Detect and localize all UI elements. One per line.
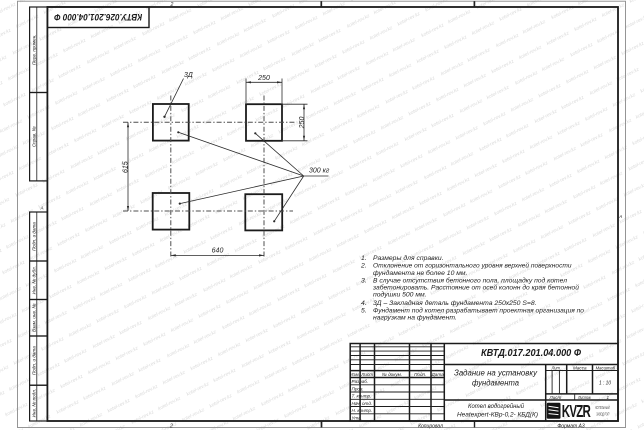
svg-text:250: 250 — [257, 75, 270, 82]
svg-text:КОТЕЛЬНЫЙ: КОТЕЛЬНЫЙ — [595, 405, 610, 410]
svg-text:Нач. отд.: Нач. отд. — [352, 401, 373, 406]
svg-text:нагрузкам на фундамент.: нагрузкам на фундамент. — [373, 314, 457, 322]
svg-text:Котел водогрейный: Котел водогрейный — [468, 402, 524, 410]
svg-text:фундамента: фундамента — [472, 378, 519, 388]
svg-text:Перв. примен.: Перв. примен. — [31, 34, 36, 65]
svg-text:Дата: Дата — [431, 372, 445, 377]
svg-text:2.: 2. — [360, 262, 367, 269]
svg-text:фундамента не более 10 мм.: фундамента не более 10 мм. — [373, 269, 468, 277]
svg-text:KVZR: KVZR — [562, 403, 591, 422]
svg-text:615: 615 — [123, 161, 130, 173]
svg-text:Н. контр.: Н. контр. — [352, 408, 373, 413]
svg-text:3Д – Закладная деталь фундамен: 3Д – Закладная деталь фундамента 250х250… — [373, 299, 537, 307]
svg-text:Heatexpert-КВр-0,2- КБД(К): Heatexpert-КВр-0,2- КБД(К) — [457, 411, 538, 418]
svg-text:3Д: 3Д — [184, 72, 193, 79]
svg-text:Лит.: Лит. — [551, 365, 561, 370]
svg-text:Копировал: Копировал — [418, 424, 443, 430]
svg-text:Размеры для справки.: Размеры для справки. — [373, 254, 444, 262]
svg-text:КВТУ.026.201.04.000 Ф: КВТУ.026.201.04.000 Ф — [54, 11, 142, 22]
svg-text:Подп. и дата: Подп. и дата — [31, 346, 36, 375]
svg-text:1 : 10: 1 : 10 — [599, 381, 611, 387]
svg-text:Лист: Лист — [549, 395, 562, 400]
svg-text:Инв. № подл.: Инв. № подл. — [31, 389, 36, 418]
svg-text:Отклонение от горизонтального: Отклонение от горизонтального уровня вер… — [373, 261, 572, 269]
svg-text:3.: 3. — [361, 277, 367, 284]
svg-text:Разраб.: Разраб. — [352, 379, 369, 384]
svg-text:забетонировать. Расстояние от: забетонировать. Расстояние от осей колон… — [372, 284, 579, 292]
svg-text:подушки 500 мм.: подушки 500 мм. — [373, 290, 427, 298]
svg-text:№ докум.: № докум. — [382, 372, 402, 377]
svg-text:4.: 4. — [361, 300, 367, 307]
svg-text:Пров.: Пров. — [352, 386, 364, 391]
svg-text:640: 640 — [212, 248, 224, 255]
svg-text:Подп.: Подп. — [414, 372, 426, 377]
svg-text:1: 1 — [607, 395, 610, 400]
svg-text:Фундамент под котел разрабатыв: Фундамент под котел разрабатывает проект… — [373, 306, 584, 314]
svg-text:ЗАВОД РЭП: ЗАВОД РЭП — [596, 412, 609, 417]
svg-text:Лист: Лист — [360, 372, 373, 377]
svg-text:КВТД.017.201.04.000 Ф: КВТД.017.201.04.000 Ф — [481, 347, 582, 359]
svg-text:5.: 5. — [361, 307, 367, 314]
svg-text:Задание на установку: Задание на установку — [454, 368, 538, 378]
svg-text:Подп. и дата: Подп. и дата — [31, 222, 36, 251]
svg-text:А: А — [618, 214, 622, 219]
svg-text:Изм.: Изм. — [350, 372, 360, 377]
svg-text:Утв.: Утв. — [352, 416, 362, 421]
svg-text:250: 250 — [299, 117, 306, 130]
svg-text:Т. контр.: Т. контр. — [352, 394, 372, 399]
svg-text:В случае отсутствия бетонного: В случае отсутствия бетонного пола, площ… — [373, 276, 567, 284]
svg-text:А: А — [40, 205, 44, 210]
svg-text:Справ. №: Справ. № — [31, 126, 36, 147]
svg-text:Формат А3: Формат А3 — [557, 424, 585, 430]
svg-text:Инв. № дубл.: Инв. № дубл. — [31, 266, 36, 294]
svg-text:1.: 1. — [361, 255, 367, 262]
svg-text:2: 2 — [169, 423, 173, 429]
svg-text:2: 2 — [170, 2, 174, 8]
svg-text:Листов: Листов — [577, 395, 591, 400]
svg-text:300 кг: 300 кг — [309, 167, 330, 174]
svg-text:Взам. инв. №: Взам. инв. № — [31, 304, 36, 332]
svg-text:Масштаб: Масштаб — [596, 365, 616, 370]
svg-text:Масса: Масса — [573, 365, 587, 370]
